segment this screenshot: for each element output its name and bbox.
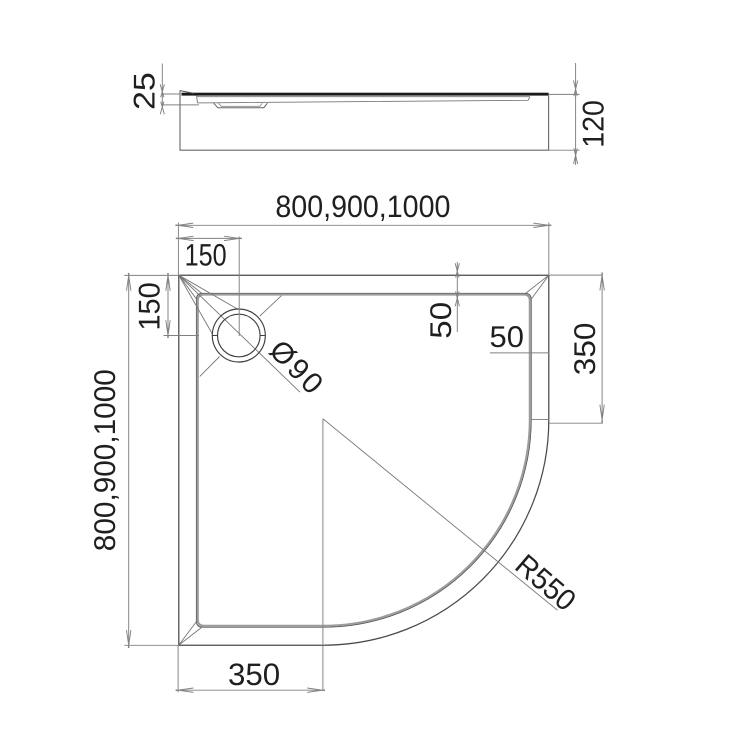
svg-text:350: 350 — [228, 657, 280, 692]
svg-text:120: 120 — [577, 100, 610, 148]
svg-text:50: 50 — [490, 321, 524, 354]
svg-text:50: 50 — [425, 302, 458, 339]
svg-text:150: 150 — [134, 282, 167, 330]
svg-text:350: 350 — [569, 323, 602, 376]
svg-text:150: 150 — [185, 238, 227, 273]
svg-text:25: 25 — [128, 72, 161, 110]
svg-text:800,900,1000: 800,900,1000 — [275, 189, 450, 224]
svg-text:800,900,1000: 800,900,1000 — [89, 369, 122, 551]
